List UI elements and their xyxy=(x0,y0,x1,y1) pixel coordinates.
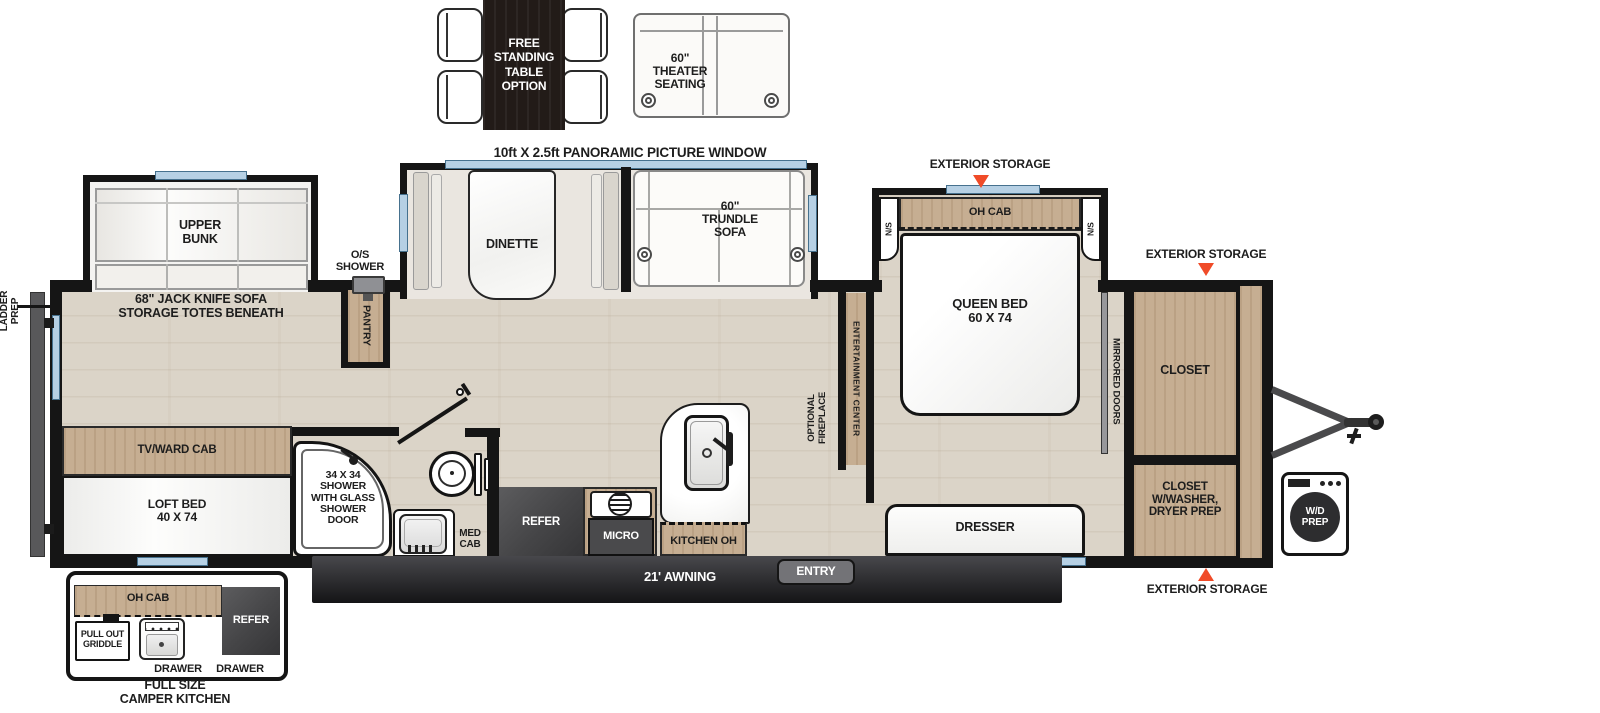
bunk-divider xyxy=(95,202,308,204)
kitchen-oh-label: KITCHEN OH xyxy=(660,535,747,547)
optional-fireplace-label: OPTIONAL FIREPLACE xyxy=(806,363,832,473)
closet-washer-label: CLOSET W/WASHER, DRYER PREP xyxy=(1134,481,1236,519)
outside-shower-knob xyxy=(363,294,373,301)
camper-refer-label: REFER xyxy=(222,614,280,626)
cupholder-icon xyxy=(768,97,775,104)
ladder-mount xyxy=(44,318,54,328)
cupholder-icon xyxy=(794,251,801,258)
dinette-label: DINETTE xyxy=(470,238,554,252)
ladder-prep-label: LADDER PREP xyxy=(0,281,25,341)
ladder-mount xyxy=(44,524,54,534)
front-wall-panel xyxy=(1240,286,1262,558)
chair-back-line xyxy=(600,13,602,57)
loft-bed-label: LOFT BED 40 X 74 xyxy=(110,498,244,524)
exterior-storage-arrow-icon xyxy=(1198,263,1214,276)
chair-back-line xyxy=(600,75,602,119)
toilet-dot xyxy=(450,471,454,475)
trundle-sofa-line xyxy=(648,172,650,285)
pantry-label: PANTRY xyxy=(348,291,383,359)
oh-cab-dashed-line xyxy=(899,227,1081,230)
chair-back-line xyxy=(446,13,448,57)
dinette-table xyxy=(468,170,556,300)
awning-label: 21' AWNING xyxy=(560,570,800,584)
wall-top xyxy=(50,280,92,292)
wall-closet-left xyxy=(1124,286,1134,558)
cupholder-icon xyxy=(645,97,652,104)
exterior-storage-label: EXTERIOR STORAGE xyxy=(900,158,1080,171)
wd-prep-label: W/D PREP xyxy=(1290,506,1340,528)
jack-knife-sofa-cushions xyxy=(95,264,308,290)
wall-bath-top xyxy=(283,427,399,436)
griddle-cap xyxy=(103,614,119,622)
window xyxy=(399,194,408,252)
camper-kitchen-title: FULL SIZE CAMPER KITCHEN xyxy=(85,679,265,707)
toilet-tank-icon xyxy=(474,453,482,496)
queen-bed-label: QUEEN BED 60 X 74 xyxy=(910,297,1070,326)
wall-entertainment-right xyxy=(866,288,874,503)
sink-drain-icon xyxy=(702,448,712,458)
bedroom-oh-cab-label: OH CAB xyxy=(930,206,1050,218)
tv-ward-cabinet-label: TV/WARD CAB xyxy=(62,444,292,457)
washer-knob xyxy=(1336,481,1341,486)
dinette-bench xyxy=(413,172,429,290)
drawer-label: DRAWER xyxy=(146,663,210,675)
upper-bunk-label: UPPER BUNK xyxy=(140,219,260,247)
nightstand-label: N/S xyxy=(879,199,899,259)
microwave-label: MICRO xyxy=(588,530,654,542)
dinette-bench xyxy=(431,174,442,288)
wall-pantry-left xyxy=(341,285,348,368)
exterior-storage-ar-icon xyxy=(1198,568,1214,581)
cupholder-icon xyxy=(641,251,648,258)
free-standing-table-label: FREE STANDING TABLE OPTION xyxy=(487,36,561,94)
sofa-divider xyxy=(166,264,168,290)
chair-back-line xyxy=(446,75,448,119)
wall-pantry-right xyxy=(383,285,390,368)
bath-faucet-icon xyxy=(408,545,432,554)
toilet-tank-icon xyxy=(484,458,490,491)
stove-burner-icon xyxy=(608,492,632,516)
mirrored-door-panel xyxy=(1101,292,1108,454)
wall-closet-divider xyxy=(1124,455,1242,465)
med-cab-label: MED CAB xyxy=(450,528,490,550)
floorplan-diagram: FREE STANDING TABLE OPTION 60" THEATER S… xyxy=(0,0,1600,713)
tongue-jack-handle xyxy=(1347,434,1361,438)
dresser-label: DRESSER xyxy=(905,521,1065,535)
camper-sink-faucet xyxy=(145,622,179,631)
jack-knife-sofa-label: 68" JACK KNIFE SOFA STORAGE TOTES BENEAT… xyxy=(85,293,317,321)
camper-sink-drain xyxy=(159,642,164,647)
hitch-ball-dot xyxy=(1373,419,1379,425)
outside-shower-icon xyxy=(352,276,385,294)
tongue-bar xyxy=(1271,418,1355,459)
os-shower-label: O/S SHOWER xyxy=(328,249,392,273)
dining-chair xyxy=(437,8,483,62)
window xyxy=(946,185,1040,194)
window xyxy=(137,557,208,566)
dining-chair xyxy=(437,70,483,124)
washer-knob xyxy=(1328,481,1333,486)
dinette-bench xyxy=(603,172,619,290)
washer-display xyxy=(1288,479,1310,487)
washer-knob xyxy=(1320,481,1325,486)
camper-oh-cab-label: OH CAB xyxy=(74,592,222,604)
refrigerator-label: REFER xyxy=(499,516,583,529)
entertainment-center-label: ENTERTAINMENT CENTER xyxy=(846,294,866,464)
dinette-bench xyxy=(591,174,602,288)
panoramic-window-label: 10ft X 2.5ft PANORAMIC PICTURE WINDOW xyxy=(440,146,820,161)
bath-sink-inner xyxy=(404,519,442,547)
wall-right xyxy=(1262,280,1273,568)
window xyxy=(808,195,817,252)
shower-label: 34 X 34 SHOWER WITH GLASS SHOWER DOOR xyxy=(300,470,386,527)
trundle-sofa-label: 60" TRUNDLE SOFA xyxy=(680,200,780,240)
closet-label: CLOSET xyxy=(1134,364,1236,378)
wall-slide-divider xyxy=(621,167,631,292)
ladder-prep-bar xyxy=(30,292,45,557)
theater-seating-label: 60" THEATER SEATING xyxy=(634,52,726,92)
window xyxy=(155,171,247,180)
drawer-label: DRAWER xyxy=(208,663,272,675)
exterior-storage-label: EXTERIOR STORAGE xyxy=(1116,248,1296,261)
wall-entertainment-left xyxy=(838,288,846,470)
sofa-divider xyxy=(237,264,239,290)
entry-label: ENTRY xyxy=(777,565,855,578)
nightstand-label: N/S xyxy=(1081,199,1101,259)
exterior-storage-arrow-icon xyxy=(973,175,989,188)
exterior-storage-label: EXTERIOR STORAGE xyxy=(1117,583,1297,596)
mirrored-doors-label: MIRRORED DOORS xyxy=(1108,297,1123,465)
trundle-sofa-line xyxy=(789,172,791,285)
griddle-label: PULL OUT GRIDDLE xyxy=(76,630,129,650)
theater-seat-line xyxy=(640,30,783,32)
